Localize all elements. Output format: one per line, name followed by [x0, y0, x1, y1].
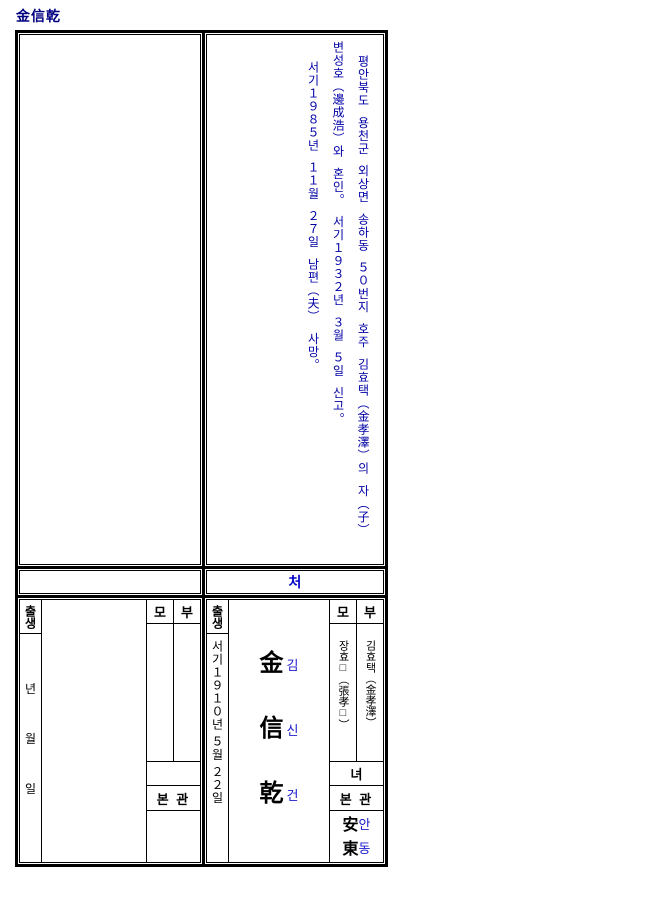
unit-month: 월	[25, 730, 36, 747]
wife-row-left-empty	[19, 570, 201, 594]
wife-birth-column: 출생 서기１９１０년 ５월 ２２일	[207, 600, 229, 862]
wife-birth-date: 서기１９１０년 ５월 ２２일	[209, 640, 226, 862]
wife-mother-label: 모	[330, 600, 356, 623]
event-entry-origin: 평안북도 용천군 외상면 송하동 ５０번지 호주 김효택（金孝澤）의 자（子）	[350, 55, 375, 560]
left-relation-cell-empty	[147, 762, 200, 786]
left-birth-date-units: 년 월 일	[20, 634, 41, 862]
wife-parents-column: 모 부 장효□（張孝□） 김효택（金孝澤） 녀 본 관	[329, 600, 383, 862]
wife-row-left-cell	[18, 569, 202, 595]
left-father-name-empty	[173, 624, 200, 761]
name-char-3: 乾 건	[260, 773, 299, 808]
event-entry-marriage: 변성호（邊成浩）와 혼인。 서기１９３２년 ３월 ５일 신고。	[325, 41, 350, 560]
left-mother-name-empty	[147, 624, 173, 761]
wife-label-cell: 처	[206, 570, 384, 594]
left-clan-value-empty	[147, 811, 200, 862]
wife-mother-name-cell: 장효□（張孝□）	[330, 624, 356, 761]
name-hanja-3: 乾	[260, 773, 284, 808]
left-clan-label: 본 관	[147, 786, 200, 811]
detail-left-block: 출생 년 월 일 모 부	[19, 599, 201, 863]
clan-hangul-1: 안	[359, 813, 371, 837]
wife-clan-label: 본 관	[330, 786, 383, 811]
left-birth-header: 출생	[20, 600, 41, 634]
name-hangul-1: 김	[287, 655, 299, 674]
name-hanja-2: 信	[260, 708, 284, 743]
wife-parents-names: 장효□（張孝□） 김효택（金孝澤）	[330, 624, 383, 762]
clan-char-2: 東 동	[343, 837, 371, 861]
wife-birth-header: 출생	[207, 600, 228, 634]
left-mother-label: 모	[147, 600, 173, 623]
unit-day: 일	[25, 780, 36, 797]
clan-hanja-1: 安	[343, 813, 359, 837]
left-birth-label: 출생	[22, 605, 39, 629]
register-page: 金信乾 평안북도 용천군 외상면 송하동 ５０번지 호주 김효택（金孝澤）의 자…	[0, 0, 645, 912]
events-right-cell: 평안북도 용천군 외상면 송하동 ５０번지 호주 김효택（金孝澤）의 자（子） …	[205, 33, 385, 566]
wife-row-right-cell: 처	[205, 569, 385, 595]
left-parents-header: 모 부	[147, 600, 200, 624]
name-hangul-3: 건	[287, 785, 299, 804]
family-register-table: 평안북도 용천군 외상면 송하동 ５０번지 호주 김효택（金孝澤）의 자（子） …	[15, 30, 388, 867]
events-row: 평안북도 용천군 외상면 송하동 ５０번지 호주 김효택（金孝澤）의 자（子） …	[18, 33, 385, 566]
left-parents-names-empty	[147, 624, 200, 762]
clan-char-1: 安 안	[343, 813, 371, 837]
wife-label: 처	[289, 572, 302, 592]
detail-right-block: 출생 서기１９１０년 ５월 ２２일 金 김 信 신	[206, 599, 384, 863]
events-left-cell-empty	[19, 34, 201, 565]
wife-mother-name: 장효□（張孝□）	[335, 640, 351, 761]
event-text-block: 평안북도 용천군 외상면 송하동 ５０번지 호주 김효택（金孝澤）의 자（子） …	[206, 34, 384, 565]
wife-parents-header: 모 부	[330, 600, 383, 624]
wife-row: 처	[18, 569, 385, 595]
wife-name-cell: 金 김 信 신 乾 건	[229, 600, 329, 862]
detail-row: 출생 년 월 일 모 부	[18, 598, 385, 864]
wife-clan-value: 安 안 東 동	[330, 811, 383, 862]
left-birth-column: 출생 년 월 일	[20, 600, 42, 862]
clan-hangul-2: 동	[359, 837, 371, 861]
wife-father-name: 김효택（金孝澤）	[362, 640, 378, 761]
left-parents-column: 모 부 본 관	[146, 600, 200, 862]
wife-father-name-cell: 김효택（金孝澤）	[356, 624, 383, 761]
events-left-cell	[18, 33, 202, 566]
detail-left-cell: 출생 년 월 일 모 부	[18, 598, 202, 864]
name-hangul-2: 신	[287, 720, 299, 739]
left-name-cell-empty	[42, 600, 146, 862]
name-hanja-1: 金	[260, 643, 284, 678]
event-entry-death: 서기１９８５년 １１월 ２７일 남편（夫） 사망。	[300, 61, 325, 560]
name-char-1: 金 김	[260, 643, 299, 678]
name-char-2: 信 신	[260, 708, 299, 743]
wife-birth-date-cell: 서기１９１０년 ５월 ２２일	[207, 634, 228, 862]
wife-father-label: 부	[356, 600, 383, 623]
wife-birth-label: 출생	[209, 605, 226, 629]
wife-relation-label: 녀	[330, 762, 383, 786]
unit-year: 년	[25, 680, 36, 697]
left-father-label: 부	[173, 600, 200, 623]
detail-right-cell: 출생 서기１９１０년 ５월 ２２일 金 김 信 신	[205, 598, 385, 864]
clan-hanja-2: 東	[343, 837, 359, 861]
page-title: 金信乾	[16, 6, 61, 26]
